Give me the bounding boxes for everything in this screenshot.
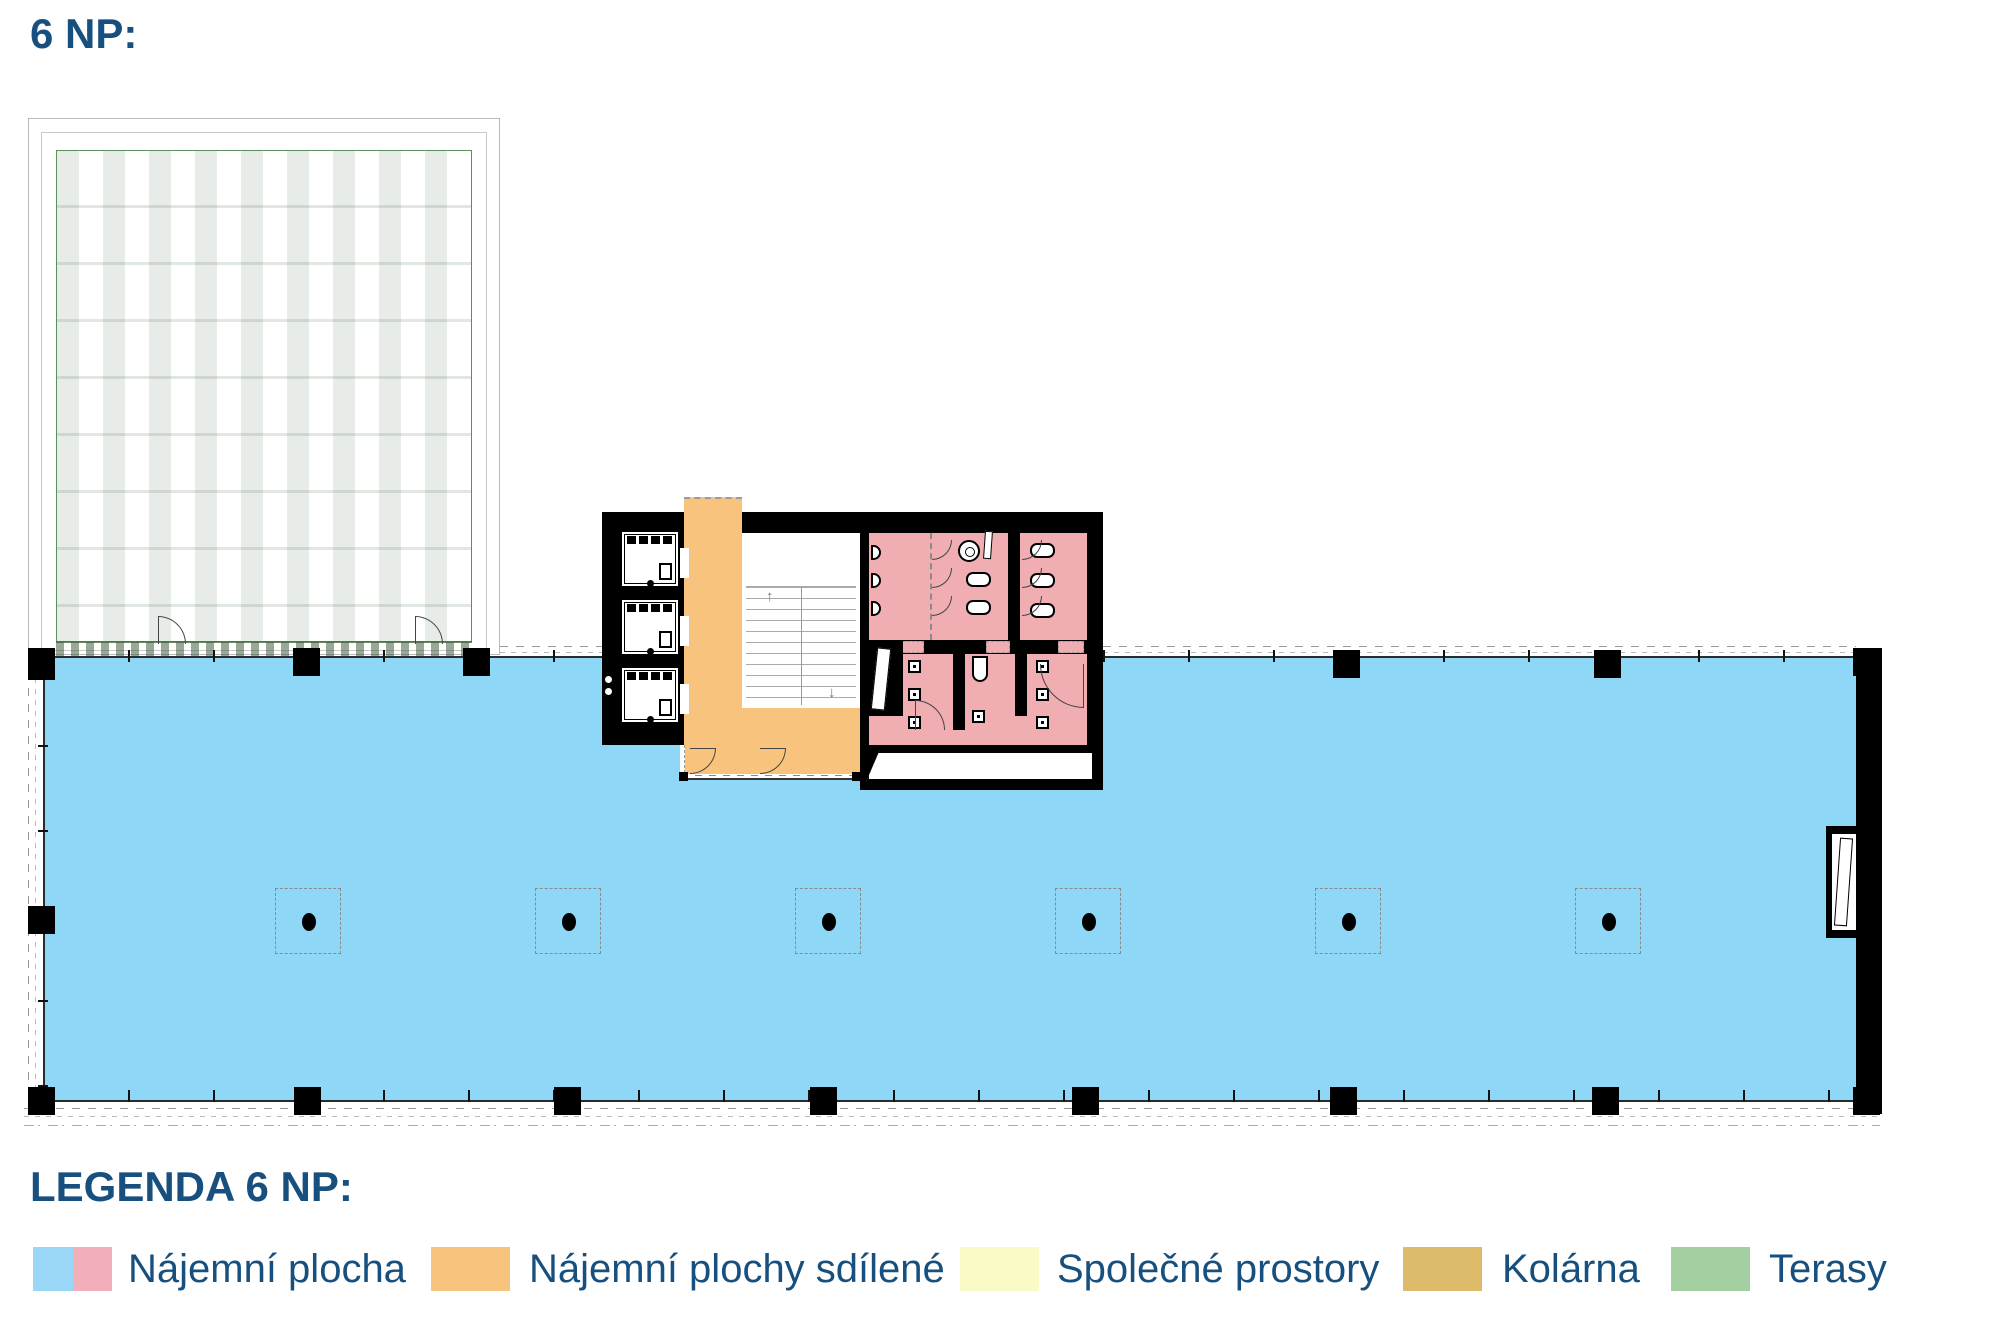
column bbox=[554, 1087, 581, 1115]
legend-label: Nájemní plocha bbox=[128, 1247, 406, 1291]
elevator-cab bbox=[624, 670, 676, 720]
legend-swatch-terraces bbox=[1671, 1247, 1750, 1291]
column bbox=[28, 648, 55, 680]
column bbox=[28, 1087, 55, 1115]
mullion-ticks-top bbox=[43, 650, 602, 662]
legend-label: Terasy bbox=[1769, 1247, 1887, 1291]
grid-dot bbox=[1342, 913, 1356, 931]
sink-icon bbox=[908, 660, 921, 673]
grid-dot bbox=[562, 913, 576, 931]
stall-divider-wall bbox=[1008, 533, 1020, 640]
elevator-counterweight bbox=[659, 563, 672, 580]
stair-arrow-down: ↓ bbox=[828, 685, 836, 700]
elevator-3 bbox=[620, 666, 680, 724]
core-south-door bbox=[866, 750, 1095, 782]
restroom-door-gap bbox=[986, 641, 1010, 653]
floor-plan-page: 6 NP: bbox=[0, 0, 2000, 1323]
wall-tick bbox=[852, 772, 861, 781]
sink-icon bbox=[1036, 716, 1049, 729]
elevator-2 bbox=[620, 598, 680, 656]
legend-label: Nájemní plochy sdílené bbox=[529, 1247, 945, 1291]
corridor-north-opening bbox=[684, 497, 742, 512]
elevator-door-opening bbox=[680, 616, 689, 646]
elevator-marker-dot bbox=[647, 648, 654, 655]
legend-swatch-bike-room bbox=[1403, 1247, 1482, 1291]
column-grid-marker bbox=[1315, 888, 1381, 954]
sink-icon bbox=[972, 710, 985, 723]
stair-divider bbox=[801, 587, 802, 705]
stall-divider-wall bbox=[953, 654, 965, 730]
elevator-machinery-icon bbox=[627, 604, 673, 612]
legend-heading: LEGENDA 6 NP: bbox=[30, 1163, 353, 1211]
column bbox=[463, 648, 490, 676]
column-grid-marker bbox=[795, 888, 861, 954]
shower-drain-icon bbox=[958, 540, 980, 562]
stairwell: ↑ ↓ bbox=[742, 533, 860, 708]
elevator-machinery-icon bbox=[627, 536, 673, 544]
shared-corridor bbox=[684, 497, 742, 708]
column-grid-marker bbox=[535, 888, 601, 954]
wall-tick bbox=[679, 772, 688, 781]
stall-divider-wall bbox=[1015, 654, 1027, 716]
grid-dot bbox=[822, 913, 836, 931]
elevator-cab bbox=[624, 534, 676, 584]
mullion-ticks-top bbox=[1103, 650, 1856, 662]
legend-label: Společné prostory bbox=[1057, 1247, 1379, 1291]
stair-treads bbox=[746, 586, 856, 705]
column bbox=[1333, 650, 1360, 678]
elevator-marker-dot bbox=[647, 716, 654, 723]
legend-swatch-rental bbox=[33, 1247, 112, 1291]
column bbox=[28, 906, 55, 934]
elevator-counterweight bbox=[659, 699, 672, 716]
legend-swatch-shared bbox=[431, 1247, 510, 1291]
legend-swatch-rental-pink bbox=[73, 1247, 113, 1291]
elevator-door-opening bbox=[680, 548, 689, 578]
shaft-vent-circle bbox=[604, 675, 613, 684]
terrace-area bbox=[56, 150, 472, 643]
column bbox=[293, 648, 320, 676]
toilet-icon bbox=[966, 600, 991, 615]
column-grid-marker bbox=[275, 888, 341, 954]
shaft-vent-circle bbox=[604, 687, 613, 696]
sink-icon bbox=[1036, 688, 1049, 701]
elevator-1 bbox=[620, 530, 680, 588]
column-grid-marker bbox=[1575, 888, 1641, 954]
elevator-machinery-icon bbox=[627, 672, 673, 680]
legend-swatch-rental-blue bbox=[33, 1247, 73, 1291]
legend-label: Kolárna bbox=[1502, 1247, 1640, 1291]
toilet-icon bbox=[966, 572, 991, 587]
mullion-ticks-left bbox=[38, 660, 48, 1100]
column bbox=[1594, 650, 1621, 678]
page-title: 6 NP: bbox=[30, 10, 137, 58]
elevator-counterweight bbox=[659, 631, 672, 648]
elevator-cab bbox=[624, 602, 676, 652]
stair-arrow-up: ↑ bbox=[766, 589, 774, 604]
elevator-door-opening bbox=[680, 684, 689, 714]
column bbox=[294, 1087, 321, 1115]
grid-dot bbox=[1602, 913, 1616, 931]
elevator-marker-dot bbox=[647, 580, 654, 587]
column-grid-marker bbox=[1055, 888, 1121, 954]
column bbox=[810, 1087, 837, 1115]
legend-swatch-common bbox=[960, 1247, 1039, 1291]
toilet-icon bbox=[972, 656, 988, 682]
column bbox=[1330, 1087, 1357, 1115]
grid-dot bbox=[302, 913, 316, 931]
lobby-south-wall bbox=[681, 774, 860, 780]
grid-dot bbox=[1082, 913, 1096, 931]
restroom-door-gap bbox=[1058, 641, 1084, 653]
column bbox=[1072, 1087, 1099, 1115]
column bbox=[1592, 1087, 1619, 1115]
